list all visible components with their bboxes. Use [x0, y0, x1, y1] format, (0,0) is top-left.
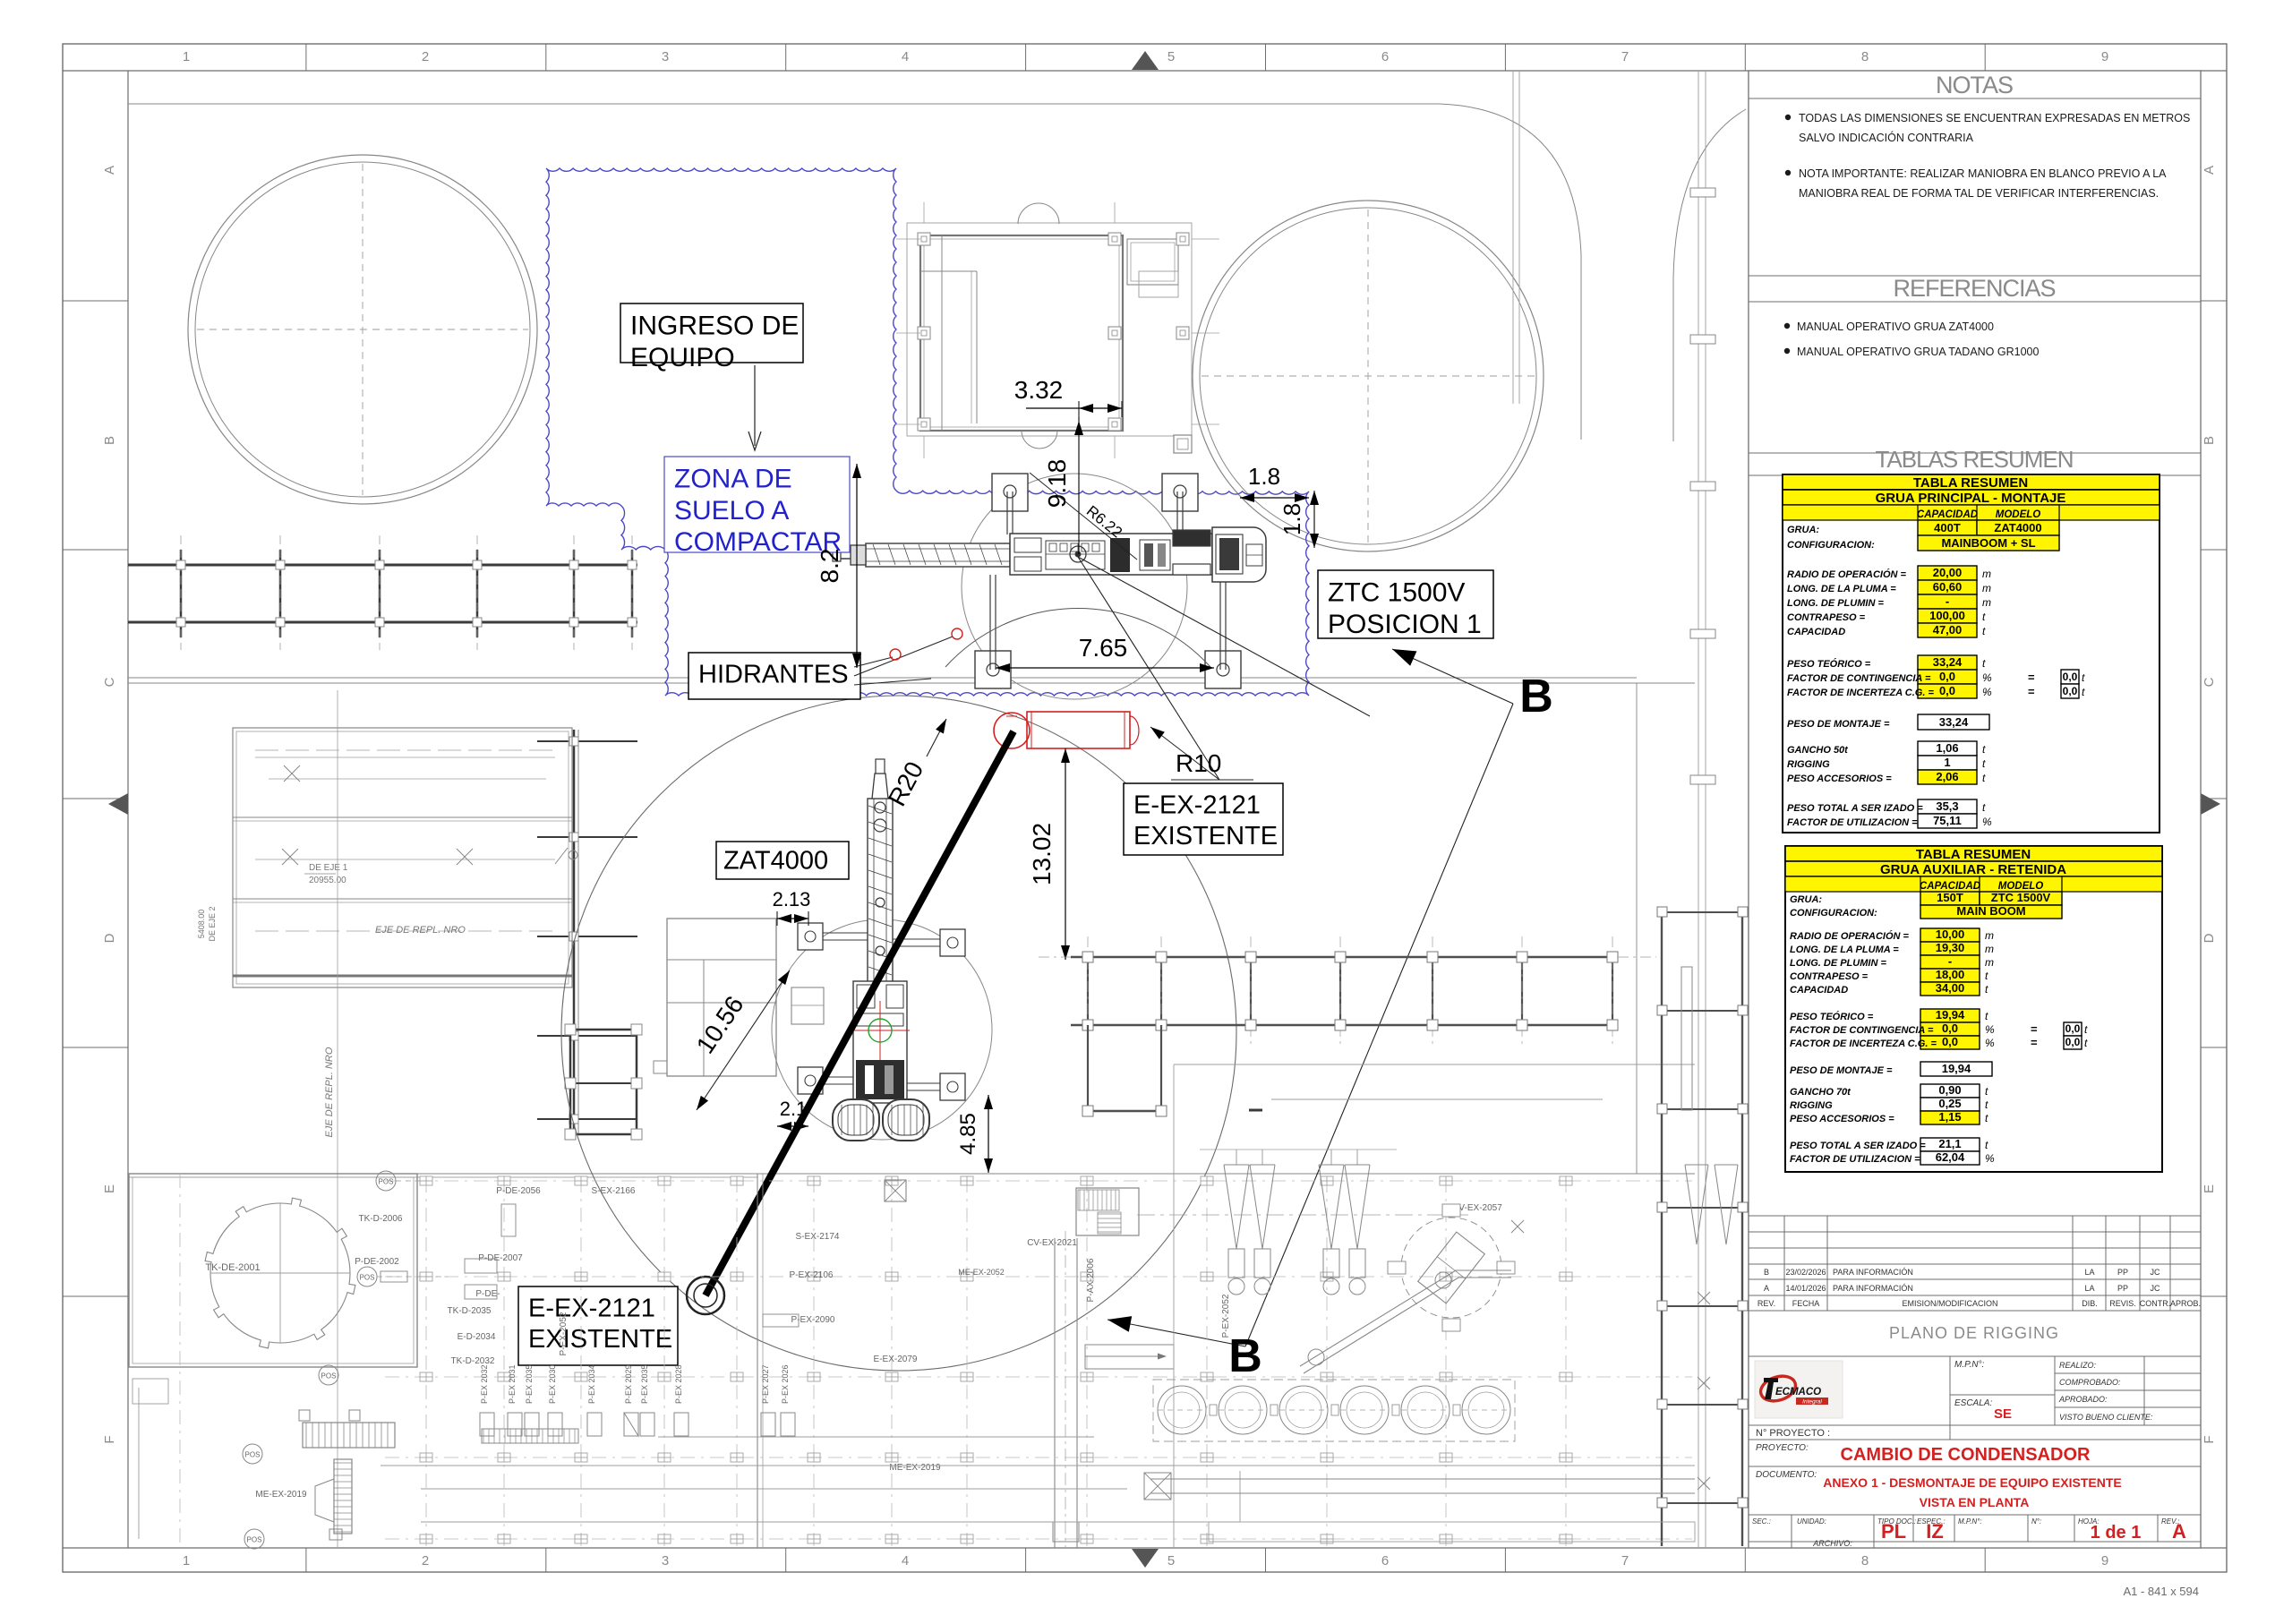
- svg-text:REVIS.: REVIS.: [2109, 1299, 2136, 1308]
- svg-text:P-EX-2106: P-EX-2106: [790, 1270, 834, 1280]
- svg-text:1: 1: [1944, 756, 1950, 769]
- svg-text:DIB.: DIB.: [2082, 1299, 2098, 1308]
- svg-text:75,11: 75,11: [1933, 814, 1962, 827]
- svg-text:TABLA RESUMEN: TABLA RESUMEN: [1913, 475, 2028, 491]
- svg-text:m: m: [1982, 568, 1991, 580]
- svg-text:JC: JC: [2151, 1268, 2161, 1277]
- svg-text:B: B: [1764, 1268, 1769, 1277]
- svg-text:ZTC 1500V: ZTC 1500V: [1328, 577, 1465, 607]
- svg-text:=: =: [2028, 671, 2035, 684]
- svg-text:2: 2: [422, 1553, 429, 1568]
- svg-text:FACTOR DE INCERTEZA C.G. =: FACTOR DE INCERTEZA C.G. =: [1790, 1039, 1937, 1049]
- svg-text:0,25: 0,25: [1938, 1097, 1961, 1110]
- svg-text:TK-D-2035: TK-D-2035: [448, 1306, 492, 1316]
- svg-text:18,00: 18,00: [1936, 968, 1965, 981]
- svg-text:E: E: [2202, 1184, 2217, 1193]
- svg-text:5408.00: 5408.00: [197, 910, 206, 939]
- svg-text:62,04: 62,04: [1936, 1150, 1965, 1164]
- svg-text:FECHA: FECHA: [1792, 1299, 1820, 1308]
- svg-text:VISTO BUENO CLIENTE:: VISTO BUENO CLIENTE:: [2059, 1413, 2153, 1422]
- svg-text:POS: POS: [360, 1274, 375, 1282]
- svg-text:PARA INFORMACIÓN: PARA INFORMACIÓN: [1833, 1284, 1913, 1293]
- svg-text:7.65: 7.65: [1079, 634, 1128, 662]
- svg-text:B: B: [1519, 671, 1553, 722]
- svg-text:INGRESO DE: INGRESO DE: [630, 311, 799, 340]
- svg-text:SEC.:: SEC.:: [1752, 1517, 1771, 1526]
- svg-text:FACTOR DE UTILIZACION =: FACTOR DE UTILIZACION =: [1787, 817, 1918, 828]
- svg-text:PESO ACCESORIOS =: PESO ACCESORIOS =: [1787, 774, 1892, 784]
- svg-text:1 de 1: 1 de 1: [2091, 1523, 2142, 1543]
- svg-text:EJE DE REPL. NRO: EJE DE REPL. NRO: [375, 925, 466, 936]
- svg-text:ME-EX-2019: ME-EX-2019: [255, 1490, 307, 1500]
- svg-text:A1 - 841 x 594: A1 - 841 x 594: [2123, 1585, 2199, 1598]
- svg-text:CAPACIDAD: CAPACIDAD: [1917, 509, 1978, 520]
- svg-text:P-EX 2032: P-EX 2032: [480, 1364, 489, 1404]
- svg-text:ME-EX-2019: ME-EX-2019: [889, 1463, 941, 1473]
- svg-text:8.2: 8.2: [816, 549, 843, 584]
- svg-text:PP: PP: [2117, 1268, 2128, 1277]
- svg-text:P-DE-2002: P-DE-2002: [355, 1257, 399, 1267]
- svg-text:ZONA DE: ZONA DE: [674, 464, 792, 493]
- svg-text:1: 1: [183, 1553, 190, 1568]
- svg-text:P-EX 2026: P-EX 2026: [781, 1364, 790, 1404]
- svg-text:20,00: 20,00: [1933, 566, 1963, 579]
- svg-text:ECMACO: ECMACO: [1775, 1387, 1821, 1397]
- svg-text:8: 8: [1861, 1553, 1869, 1568]
- svg-text:4: 4: [902, 1553, 909, 1568]
- svg-text:TODAS LAS DIMENSIONES SE ENCUE: TODAS LAS DIMENSIONES SE ENCUENTRAN EXPR…: [1799, 112, 2190, 124]
- svg-text:GANCHO 70t: GANCHO 70t: [1790, 1087, 1852, 1098]
- svg-text:CONTRAPESO =: CONTRAPESO =: [1790, 971, 1869, 982]
- svg-text:MANUAL OPERATIVO GRUA TADANO G: MANUAL OPERATIVO GRUA TADANO GR1000: [1797, 346, 2039, 358]
- svg-text:0,0: 0,0: [2065, 1036, 2081, 1048]
- svg-text:m: m: [1985, 943, 1994, 955]
- svg-text:D: D: [2202, 933, 2217, 943]
- svg-text:SALVO INDICACIÓN CONTRARIA: SALVO INDICACIÓN CONTRARIA: [1799, 131, 1974, 144]
- svg-text:=: =: [2028, 685, 2035, 698]
- svg-text:%: %: [1985, 1023, 1995, 1036]
- svg-text:POS: POS: [245, 1451, 261, 1459]
- svg-text:P-EX 2035: P-EX 2035: [640, 1364, 649, 1404]
- svg-text:E-EX-2121: E-EX-2121: [528, 1295, 655, 1323]
- svg-text:7: 7: [1621, 49, 1629, 64]
- svg-text:POS: POS: [379, 1178, 394, 1186]
- svg-text:PLANO DE RIGGING: PLANO DE RIGGING: [1889, 1324, 2059, 1342]
- svg-text:0,0: 0,0: [2063, 671, 2078, 683]
- svg-text:PROYECTO:: PROYECTO:: [1756, 1443, 1809, 1453]
- svg-text:N° PROYECTO :: N° PROYECTO :: [1756, 1428, 1830, 1439]
- svg-text:PESO TEÓRICO =: PESO TEÓRICO =: [1787, 658, 1871, 670]
- svg-text:RADIO DE OPERACIÓN =: RADIO DE OPERACIÓN =: [1787, 568, 1907, 580]
- svg-text:21,1: 21,1: [1938, 1137, 1961, 1150]
- svg-text:TK-D-2032: TK-D-2032: [451, 1356, 495, 1366]
- svg-text:3.32: 3.32: [1014, 376, 1064, 404]
- svg-text:0,0: 0,0: [1939, 670, 1955, 683]
- svg-text:2.1: 2.1: [780, 1098, 808, 1120]
- svg-text:F: F: [102, 1435, 117, 1443]
- svg-text:S-EX-2174: S-EX-2174: [796, 1232, 840, 1242]
- svg-text:HIDRANTES: HIDRANTES: [698, 661, 849, 689]
- svg-text:%: %: [1985, 1037, 1995, 1049]
- svg-text:m: m: [1985, 929, 1994, 942]
- svg-text:GRUA AUXILIAR - RETENIDA: GRUA AUXILIAR - RETENIDA: [1880, 862, 2066, 877]
- svg-text:IZ: IZ: [1926, 1520, 1944, 1543]
- svg-text:DOCUMENTO:: DOCUMENTO:: [1756, 1470, 1817, 1480]
- svg-text:P-EX 2029: P-EX 2029: [624, 1364, 633, 1404]
- svg-text:POS: POS: [247, 1536, 262, 1544]
- svg-text:GRUA PRINCIPAL - MONTAJE: GRUA PRINCIPAL - MONTAJE: [1876, 491, 2066, 506]
- svg-text:B: B: [102, 436, 117, 445]
- svg-text:P-DE-2056: P-DE-2056: [496, 1186, 541, 1196]
- svg-text:PP: PP: [2117, 1284, 2128, 1293]
- svg-text:EJE DE REPL. NRO: EJE DE REPL. NRO: [324, 1047, 335, 1137]
- svg-text:47,00: 47,00: [1933, 623, 1963, 637]
- svg-text:APROB.: APROB.: [2170, 1299, 2201, 1308]
- svg-text:PESO ACCESORIOS =: PESO ACCESORIOS =: [1790, 1114, 1894, 1124]
- svg-text:CONTRAPESO =: CONTRAPESO =: [1787, 612, 1866, 623]
- svg-text:9.18: 9.18: [1043, 459, 1071, 509]
- svg-text:33,24: 33,24: [1933, 655, 1963, 669]
- svg-text:CONFIGURACION:: CONFIGURACION:: [1790, 908, 1877, 919]
- svg-text:1.8: 1.8: [1248, 463, 1280, 490]
- svg-text:2: 2: [422, 49, 429, 64]
- svg-text:5: 5: [1167, 49, 1175, 64]
- svg-text:COMPROBADO:: COMPROBADO:: [2059, 1378, 2121, 1387]
- svg-text:APROBADO:: APROBADO:: [2058, 1395, 2108, 1404]
- svg-text:7: 7: [1621, 1553, 1629, 1568]
- svg-text:DE EJE 2: DE EJE 2: [208, 906, 217, 941]
- svg-text:JC: JC: [2151, 1284, 2161, 1293]
- svg-text:P-EX 2031: P-EX 2031: [508, 1364, 517, 1404]
- svg-text:ZTC 1500V: ZTC 1500V: [1991, 891, 2051, 904]
- svg-text:UNIDAD:: UNIDAD:: [1797, 1517, 1826, 1526]
- svg-text:3: 3: [662, 49, 669, 64]
- svg-text:CAPACIDAD: CAPACIDAD: [1787, 627, 1845, 637]
- svg-text:8: 8: [1861, 49, 1869, 64]
- svg-text:RIGGING: RIGGING: [1790, 1100, 1833, 1111]
- svg-text:19,94: 19,94: [1936, 1008, 1965, 1021]
- svg-text:FACTOR DE UTILIZACION =: FACTOR DE UTILIZACION =: [1790, 1154, 1920, 1165]
- svg-text:14/01/2026: 14/01/2026: [1785, 1284, 1826, 1293]
- svg-text:POS: POS: [321, 1372, 337, 1380]
- svg-text:P-DE-2007: P-DE-2007: [478, 1253, 523, 1263]
- svg-text:SUELO A: SUELO A: [674, 496, 789, 526]
- svg-text:13.02: 13.02: [1028, 823, 1056, 885]
- svg-text:4.85: 4.85: [956, 1113, 980, 1155]
- svg-text:EQUIPO: EQUIPO: [630, 343, 735, 372]
- svg-text:SE: SE: [1994, 1406, 2012, 1422]
- svg-text:ARCHIVO:: ARCHIVO:: [1812, 1539, 1852, 1548]
- svg-text:19,94: 19,94: [1942, 1062, 1971, 1075]
- svg-text:C: C: [2202, 677, 2217, 687]
- svg-text:=: =: [2031, 1022, 2038, 1036]
- svg-text:D: D: [102, 933, 117, 943]
- svg-text:LONG. DE LA PLUMA =: LONG. DE LA PLUMA =: [1787, 584, 1896, 594]
- svg-text:MODELO: MODELO: [1996, 509, 2041, 520]
- svg-text:TABLAS RESUMEN: TABLAS RESUMEN: [1875, 446, 2073, 473]
- svg-text:TK-D-2006: TK-D-2006: [359, 1214, 403, 1224]
- svg-text:100,00: 100,00: [1929, 609, 1965, 622]
- svg-text:R10: R10: [1176, 749, 1221, 777]
- svg-text:ZAT4000: ZAT4000: [1994, 521, 2041, 534]
- svg-text:1.8: 1.8: [1279, 503, 1305, 535]
- svg-text:CONFIGURACION:: CONFIGURACION:: [1787, 540, 1875, 551]
- svg-text:LA: LA: [2084, 1268, 2094, 1277]
- svg-text:S-EX-2166: S-EX-2166: [592, 1186, 636, 1196]
- svg-text:-: -: [1946, 594, 1949, 608]
- svg-text:VISTA EN PLANTA: VISTA EN PLANTA: [1920, 1495, 2030, 1509]
- svg-text:0,0: 0,0: [2065, 1022, 2081, 1035]
- svg-text:EMISION/MODIFICACION: EMISION/MODIFICACION: [1902, 1299, 1997, 1308]
- svg-text:N°:: N°:: [2031, 1517, 2041, 1526]
- svg-text:RIGGING: RIGGING: [1787, 759, 1830, 770]
- svg-text:1,06: 1,06: [1936, 741, 1958, 755]
- svg-text:P-EX-2052: P-EX-2052: [1221, 1294, 1231, 1338]
- svg-text:E-EX-2079: E-EX-2079: [874, 1355, 918, 1364]
- svg-text:EXISTENTE: EXISTENTE: [1133, 822, 1278, 850]
- svg-text:MANIOBRA REAL DE FORMA TAL DE: MANIOBRA REAL DE FORMA TAL DE VERIFICAR …: [1799, 187, 2159, 200]
- svg-text:PARA INFORMACIÓN: PARA INFORMACIÓN: [1833, 1268, 1913, 1277]
- svg-text:LONG. DE PLUMIN =: LONG. DE PLUMIN =: [1790, 958, 1886, 969]
- svg-text:F: F: [2202, 1435, 2217, 1443]
- svg-text:M.P.N°:: M.P.N°:: [1954, 1360, 1984, 1370]
- svg-text:m: m: [1985, 956, 1994, 969]
- svg-text:TABLA RESUMEN: TABLA RESUMEN: [1916, 847, 2031, 862]
- svg-text:PESO TEÓRICO =: PESO TEÓRICO =: [1790, 1011, 1874, 1022]
- svg-text:19,30: 19,30: [1936, 941, 1965, 954]
- svg-text:MAINBOOM + SL: MAINBOOM + SL: [1941, 536, 2035, 550]
- svg-text:0,0: 0,0: [1942, 1021, 1958, 1035]
- svg-text:A: A: [2172, 1520, 2186, 1543]
- svg-text:GRUA:: GRUA:: [1787, 525, 1819, 535]
- svg-text:FACTOR DE CONTINGENCIA =: FACTOR DE CONTINGENCIA =: [1790, 1025, 1934, 1036]
- svg-text:35,3: 35,3: [1936, 799, 1958, 813]
- svg-text:20955.00: 20955.00: [309, 876, 346, 885]
- svg-text:TK-DE-2001: TK-DE-2001: [205, 1262, 260, 1273]
- svg-text:0,0: 0,0: [1939, 684, 1955, 697]
- svg-text:m: m: [1982, 582, 1991, 594]
- svg-text:60,60: 60,60: [1933, 580, 1963, 594]
- svg-text:E: E: [102, 1184, 117, 1193]
- svg-text:NOTAS: NOTAS: [1936, 72, 2013, 98]
- svg-text:CAPACIDAD: CAPACIDAD: [1790, 985, 1848, 996]
- svg-text:B: B: [2202, 436, 2217, 445]
- svg-text:PESO DE MONTAJE =: PESO DE MONTAJE =: [1790, 1065, 1893, 1076]
- svg-text:A: A: [1764, 1284, 1769, 1293]
- svg-text:B: B: [1228, 1330, 1262, 1382]
- svg-text:-: -: [1948, 954, 1952, 968]
- svg-text:2.13: 2.13: [773, 888, 811, 910]
- svg-text:MAIN BOOM: MAIN BOOM: [1956, 904, 2025, 918]
- svg-text:EXISTENTE: EXISTENTE: [528, 1325, 672, 1354]
- svg-text:2,06: 2,06: [1936, 770, 1958, 783]
- svg-text:FACTOR DE INCERTEZA C.G. =: FACTOR DE INCERTEZA C.G. =: [1787, 688, 1934, 698]
- svg-text:P-AX-2006: P-AX-2006: [1086, 1258, 1096, 1302]
- svg-text:5: 5: [1167, 1553, 1175, 1568]
- svg-text:33,24: 33,24: [1939, 715, 1969, 729]
- svg-text:9: 9: [2101, 1553, 2108, 1568]
- svg-text:9: 9: [2101, 49, 2108, 64]
- svg-text:P-EX-2090: P-EX-2090: [791, 1315, 835, 1325]
- svg-text:m: m: [1982, 596, 1991, 609]
- svg-text:6: 6: [1381, 49, 1389, 64]
- svg-text:P-EX-2052: P-EX-2052: [559, 1312, 569, 1355]
- svg-text:PL: PL: [1881, 1520, 1906, 1543]
- svg-text:M.P.N°:: M.P.N°:: [1958, 1517, 1982, 1526]
- svg-text:150T: 150T: [1937, 891, 1963, 904]
- svg-text:%: %: [1982, 671, 1992, 684]
- svg-text:0,0: 0,0: [2063, 685, 2078, 697]
- svg-text:LONG. DE LA PLUMA =: LONG. DE LA PLUMA =: [1790, 944, 1899, 955]
- svg-text:E-EX-2121: E-EX-2121: [1133, 791, 1261, 820]
- svg-text:LA: LA: [2084, 1284, 2094, 1293]
- svg-text:ZAT4000: ZAT4000: [723, 847, 828, 876]
- svg-text:23/02/2026: 23/02/2026: [1785, 1268, 1826, 1277]
- svg-text:P-EX 2028: P-EX 2028: [674, 1364, 683, 1404]
- svg-text:34,00: 34,00: [1936, 981, 1965, 995]
- svg-text:4: 4: [902, 49, 909, 64]
- svg-text:GANCHO 50t: GANCHO 50t: [1787, 745, 1849, 756]
- svg-text:CONTR.: CONTR.: [2140, 1299, 2171, 1308]
- svg-text:P-EX 2035: P-EX 2035: [525, 1364, 534, 1404]
- svg-text:GRUA:: GRUA:: [1790, 894, 1822, 905]
- svg-text:ANEXO 1 - DESMONTAJE DE EQUIPO: ANEXO 1 - DESMONTAJE DE EQUIPO EXISTENTE: [1823, 1475, 2121, 1490]
- svg-text:ESCALA:: ESCALA:: [1954, 1398, 1992, 1408]
- svg-text:DE EJE 1: DE EJE 1: [309, 863, 348, 873]
- svg-text:1,15: 1,15: [1938, 1110, 1961, 1124]
- svg-text:0,90: 0,90: [1938, 1083, 1961, 1097]
- svg-text:CV-EX-2021: CV-EX-2021: [1027, 1238, 1077, 1248]
- svg-text:NOTA IMPORTANTE: REALIZAR MANI: NOTA IMPORTANTE: REALIZAR MANIOBRA EN BL…: [1799, 167, 2167, 180]
- svg-text:0,0: 0,0: [1942, 1035, 1958, 1048]
- svg-text:PESO TOTAL A SER IZADO =: PESO TOTAL A SER IZADO =: [1787, 803, 1923, 814]
- svg-text:Integral: Integral: [1802, 1399, 1822, 1406]
- svg-text:10,00: 10,00: [1936, 927, 1965, 941]
- svg-text:P-EX 2034: P-EX 2034: [587, 1364, 596, 1404]
- svg-text:RADIO DE OPERACIÓN =: RADIO DE OPERACIÓN =: [1790, 930, 1910, 942]
- svg-text:P-EX 2030: P-EX 2030: [548, 1364, 557, 1404]
- svg-text:3: 3: [662, 1553, 669, 1568]
- svg-text:ME-EX-2052: ME-EX-2052: [958, 1268, 1005, 1277]
- svg-text:REALIZO:: REALIZO:: [2059, 1361, 2097, 1370]
- svg-text:%: %: [1982, 816, 1992, 828]
- svg-text:P-EX 2027: P-EX 2027: [761, 1364, 770, 1404]
- svg-text:1: 1: [183, 49, 190, 64]
- svg-text:=: =: [2031, 1036, 2038, 1049]
- svg-text:%: %: [1982, 686, 1992, 698]
- svg-text:P-DE-: P-DE-: [475, 1289, 500, 1299]
- svg-text:A: A: [102, 166, 117, 175]
- svg-text:C: C: [102, 677, 117, 687]
- svg-text:LONG. DE PLUMIN =: LONG. DE PLUMIN =: [1787, 598, 1884, 609]
- svg-text:E-D-2034: E-D-2034: [458, 1332, 496, 1342]
- svg-text:PESO TOTAL A SER IZADO =: PESO TOTAL A SER IZADO =: [1790, 1141, 1926, 1151]
- svg-text:REFERENCIAS: REFERENCIAS: [1893, 275, 2055, 302]
- svg-text:FACTOR DE CONTINGENCIA =: FACTOR DE CONTINGENCIA =: [1787, 673, 1931, 684]
- svg-text:POSICION 1: POSICION 1: [1328, 610, 1482, 639]
- svg-text:MANUAL OPERATIVO GRUA ZAT4000: MANUAL OPERATIVO GRUA ZAT4000: [1797, 321, 1994, 333]
- svg-text:400T: 400T: [1934, 521, 1961, 534]
- svg-text:CAMBIO DE CONDENSADOR: CAMBIO DE CONDENSADOR: [1841, 1445, 2091, 1465]
- svg-text:6: 6: [1381, 1553, 1389, 1568]
- svg-text:PESO DE MONTAJE =: PESO DE MONTAJE =: [1787, 719, 1890, 730]
- svg-text:A: A: [2202, 166, 2217, 175]
- svg-text:%: %: [1985, 1152, 1995, 1165]
- svg-text:REV.: REV.: [1757, 1299, 1775, 1308]
